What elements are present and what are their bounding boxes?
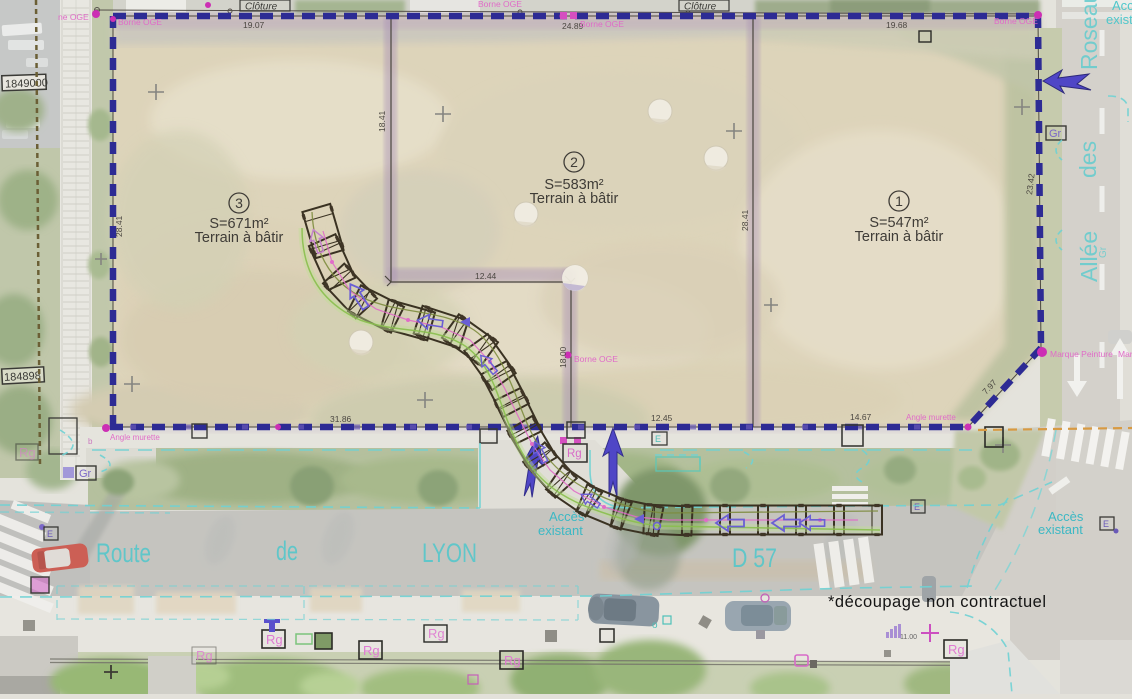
svg-text:Roseau: Roseau	[1076, 0, 1102, 70]
svg-text:Gr: Gr	[1098, 246, 1109, 258]
svg-text:Rg: Rg	[567, 448, 582, 460]
svg-text:184898: 184898	[4, 370, 41, 384]
svg-text:Rg: Rg	[428, 626, 445, 641]
svg-text:Borne OGE: Borne OGE	[580, 19, 624, 29]
svg-text:18.41: 18.41	[377, 110, 387, 132]
svg-text:3: 3	[235, 195, 243, 211]
svg-text:14.67: 14.67	[850, 412, 872, 422]
svg-text:Borne OGE: Borne OGE	[118, 17, 162, 27]
svg-text:12.45: 12.45	[651, 413, 673, 423]
svg-text:Clôture: Clôture	[684, 2, 717, 13]
svg-text:Rg: Rg	[266, 632, 283, 647]
svg-text:des: des	[1075, 141, 1101, 178]
svg-text:ne OGE: ne OGE	[58, 12, 89, 22]
svg-text:Rg: Rg	[196, 648, 213, 663]
svg-text:Borne OGE: Borne OGE	[478, 0, 522, 9]
svg-text:exist: exist	[1106, 12, 1132, 27]
svg-text:1849000: 1849000	[5, 77, 48, 90]
svg-text:Terrain à bâtir: Terrain à bâtir	[530, 191, 619, 207]
svg-text:1: 1	[895, 193, 903, 209]
svg-text:de: de	[276, 536, 298, 566]
svg-text:E: E	[1103, 519, 1109, 529]
svg-text:Angle murette: Angle murette	[906, 413, 956, 422]
svg-text:31.86: 31.86	[330, 414, 352, 424]
svg-text:Rg: Rg	[948, 642, 965, 657]
svg-text:Terrain à bâtir: Terrain à bâtir	[855, 229, 944, 245]
svg-text:Terrain à bâtir: Terrain à bâtir	[195, 230, 284, 246]
svg-text:18.00: 18.00	[558, 346, 568, 368]
svg-text:Mar: Mar	[1118, 349, 1132, 359]
svg-text:*découpage non contractuel: *découpage non contractuel	[828, 593, 1047, 611]
svg-text:19.07: 19.07	[243, 20, 265, 30]
svg-text:b: b	[88, 437, 93, 446]
svg-text:existant: existant	[1038, 522, 1083, 537]
svg-text:Rg: Rg	[504, 653, 521, 668]
svg-text:Borne OGE: Borne OGE	[994, 16, 1038, 26]
svg-text:28.41: 28.41	[740, 209, 750, 231]
svg-text:Angle murette: Angle murette	[110, 433, 160, 442]
svg-text:12.44: 12.44	[475, 271, 497, 281]
svg-text:LYON: LYON	[422, 538, 477, 568]
svg-text:Rg: Rg	[363, 643, 380, 658]
svg-text:Route: Route	[96, 538, 151, 568]
svg-text:28.41: 28.41	[114, 215, 124, 237]
svg-text:existant: existant	[538, 523, 583, 538]
svg-text:o: o	[652, 620, 658, 631]
svg-text:19.68: 19.68	[886, 20, 908, 30]
svg-text:Gr: Gr	[79, 468, 92, 480]
svg-text:Clôture: Clôture	[245, 2, 278, 13]
svg-text:2: 2	[570, 154, 578, 170]
svg-text:Gr: Gr	[1049, 128, 1062, 140]
svg-text:Borne OGE: Borne OGE	[574, 354, 618, 364]
svg-text:E: E	[47, 529, 53, 539]
svg-text:11.00: 11.00	[900, 634, 917, 641]
svg-text:D 57: D 57	[732, 543, 777, 573]
svg-text:E: E	[914, 502, 920, 512]
svg-text:E: E	[655, 434, 661, 444]
svg-text:Rg: Rg	[19, 445, 36, 460]
svg-text:Marque Peinture: Marque Peinture	[1050, 349, 1113, 359]
